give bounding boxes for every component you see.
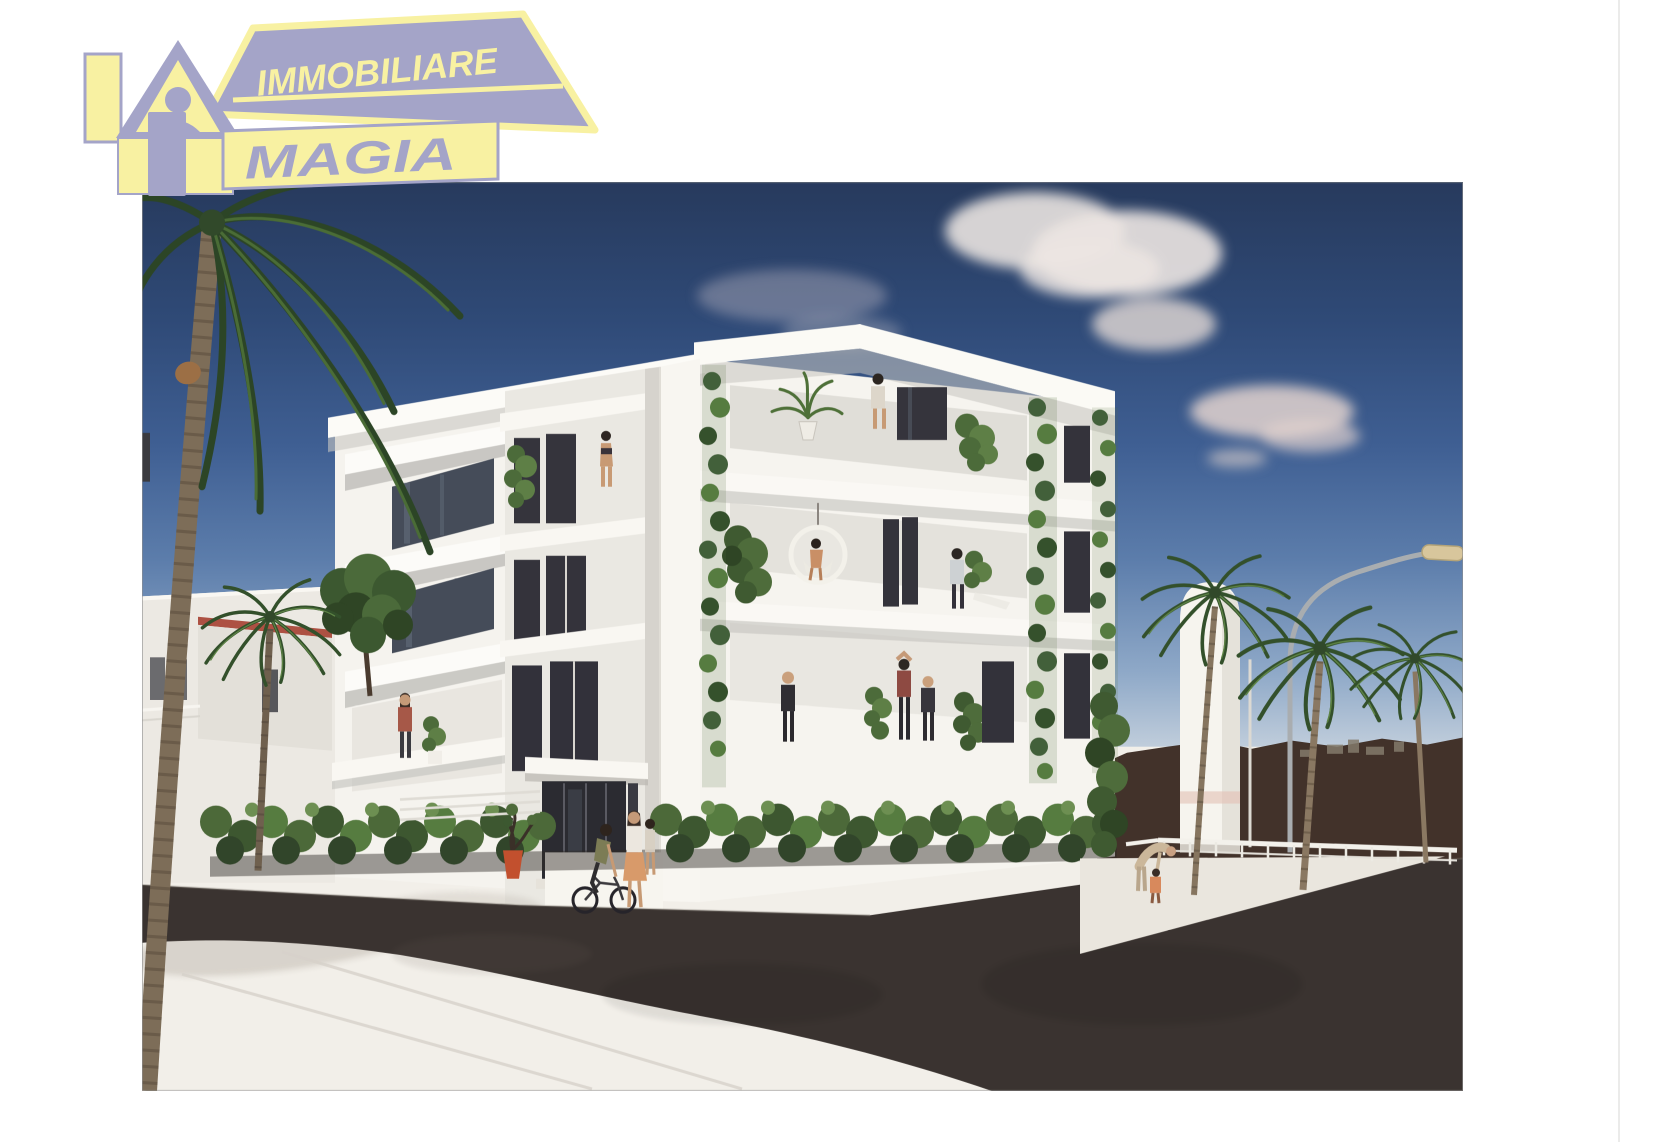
logo-line2: MAGIA <box>243 127 457 188</box>
brochure-page: IMMOBILIARE MAGIA <box>0 0 1654 1142</box>
scan-artifact-line <box>1618 0 1620 1142</box>
property-rendering-photo <box>142 182 1463 1091</box>
logo-chimney <box>85 54 121 142</box>
white-pillar <box>1180 582 1240 852</box>
lamp-head-icon <box>1422 545 1463 561</box>
agency-logo: IMMOBILIARE MAGIA <box>58 4 546 206</box>
logo-door <box>148 112 186 196</box>
logo-graphic: IMMOBILIARE MAGIA <box>58 4 546 206</box>
rendering-scene <box>142 182 1463 1091</box>
